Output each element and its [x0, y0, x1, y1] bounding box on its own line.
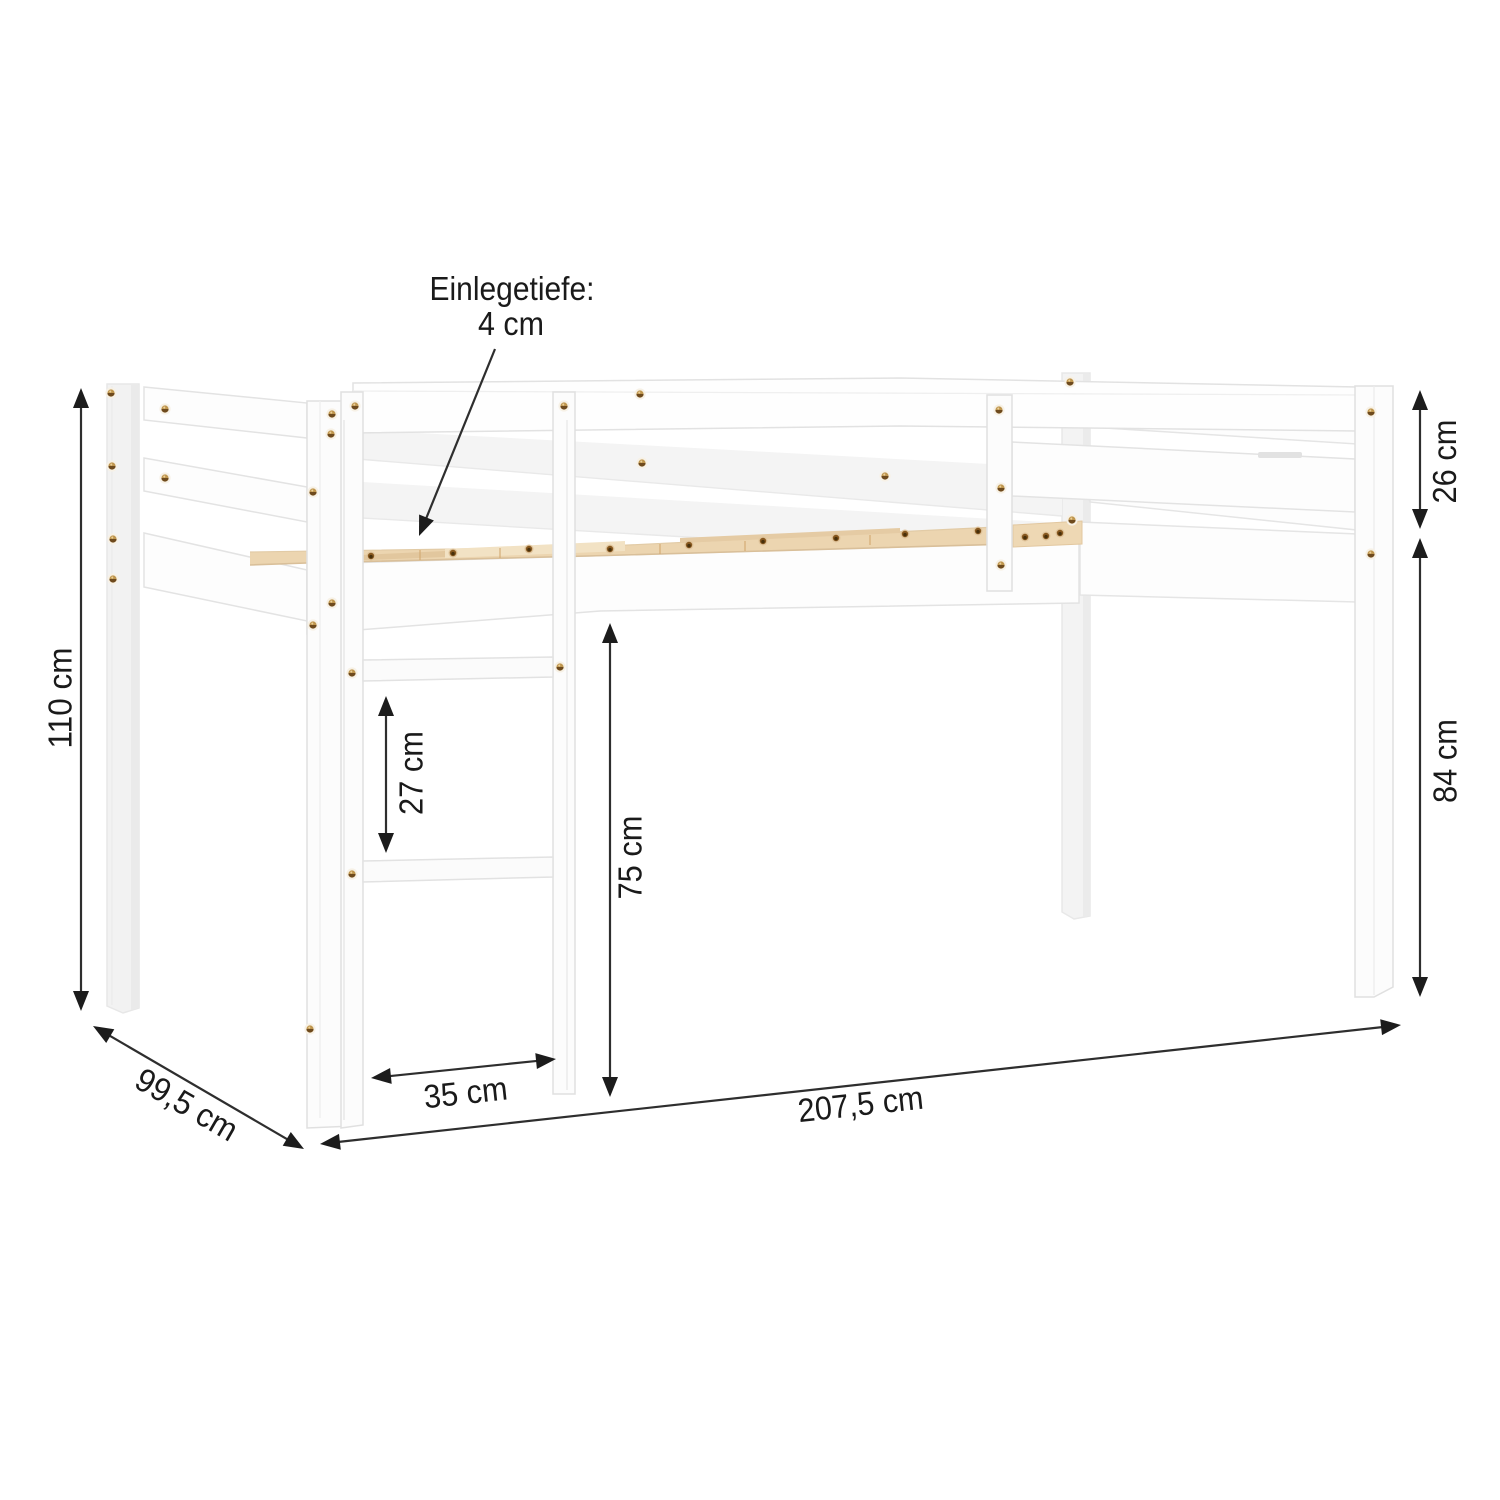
- svg-text:110 cm: 110 cm: [41, 648, 78, 749]
- svg-text:75 cm: 75 cm: [611, 816, 648, 900]
- svg-text:4 cm: 4 cm: [478, 305, 544, 342]
- svg-text:84 cm: 84 cm: [1426, 719, 1463, 803]
- svg-text:Einlegetiefe:: Einlegetiefe:: [430, 270, 595, 307]
- svg-text:26 cm: 26 cm: [1426, 420, 1463, 504]
- svg-text:27 cm: 27 cm: [392, 731, 429, 815]
